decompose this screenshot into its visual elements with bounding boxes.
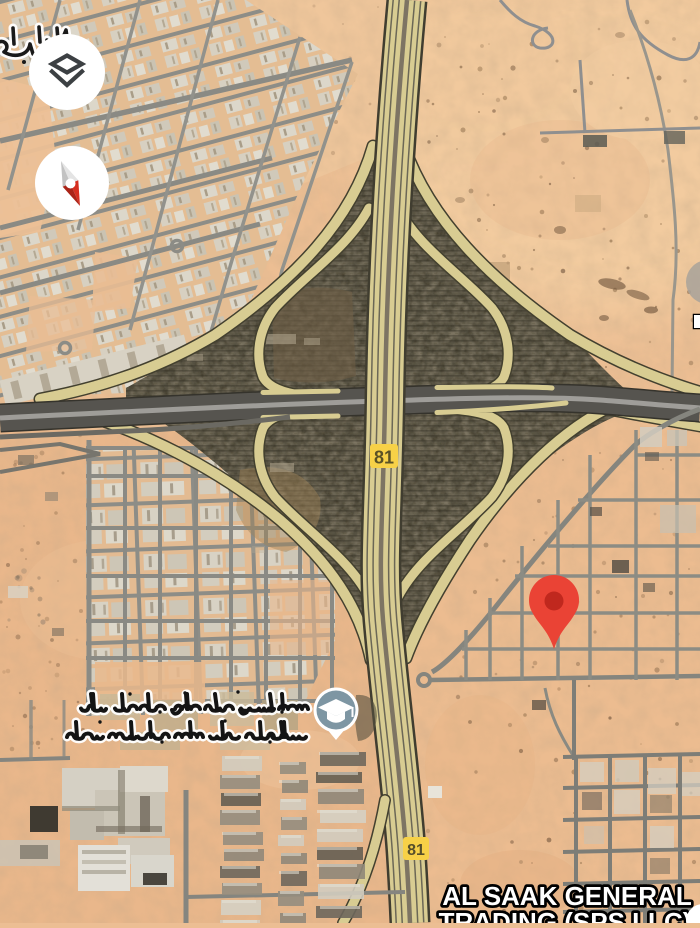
svg-text:TRADING (SPS LLC): TRADING (SPS LLC) [439, 907, 692, 923]
svg-text:81: 81 [374, 448, 394, 468]
svg-text:81: 81 [407, 842, 425, 859]
